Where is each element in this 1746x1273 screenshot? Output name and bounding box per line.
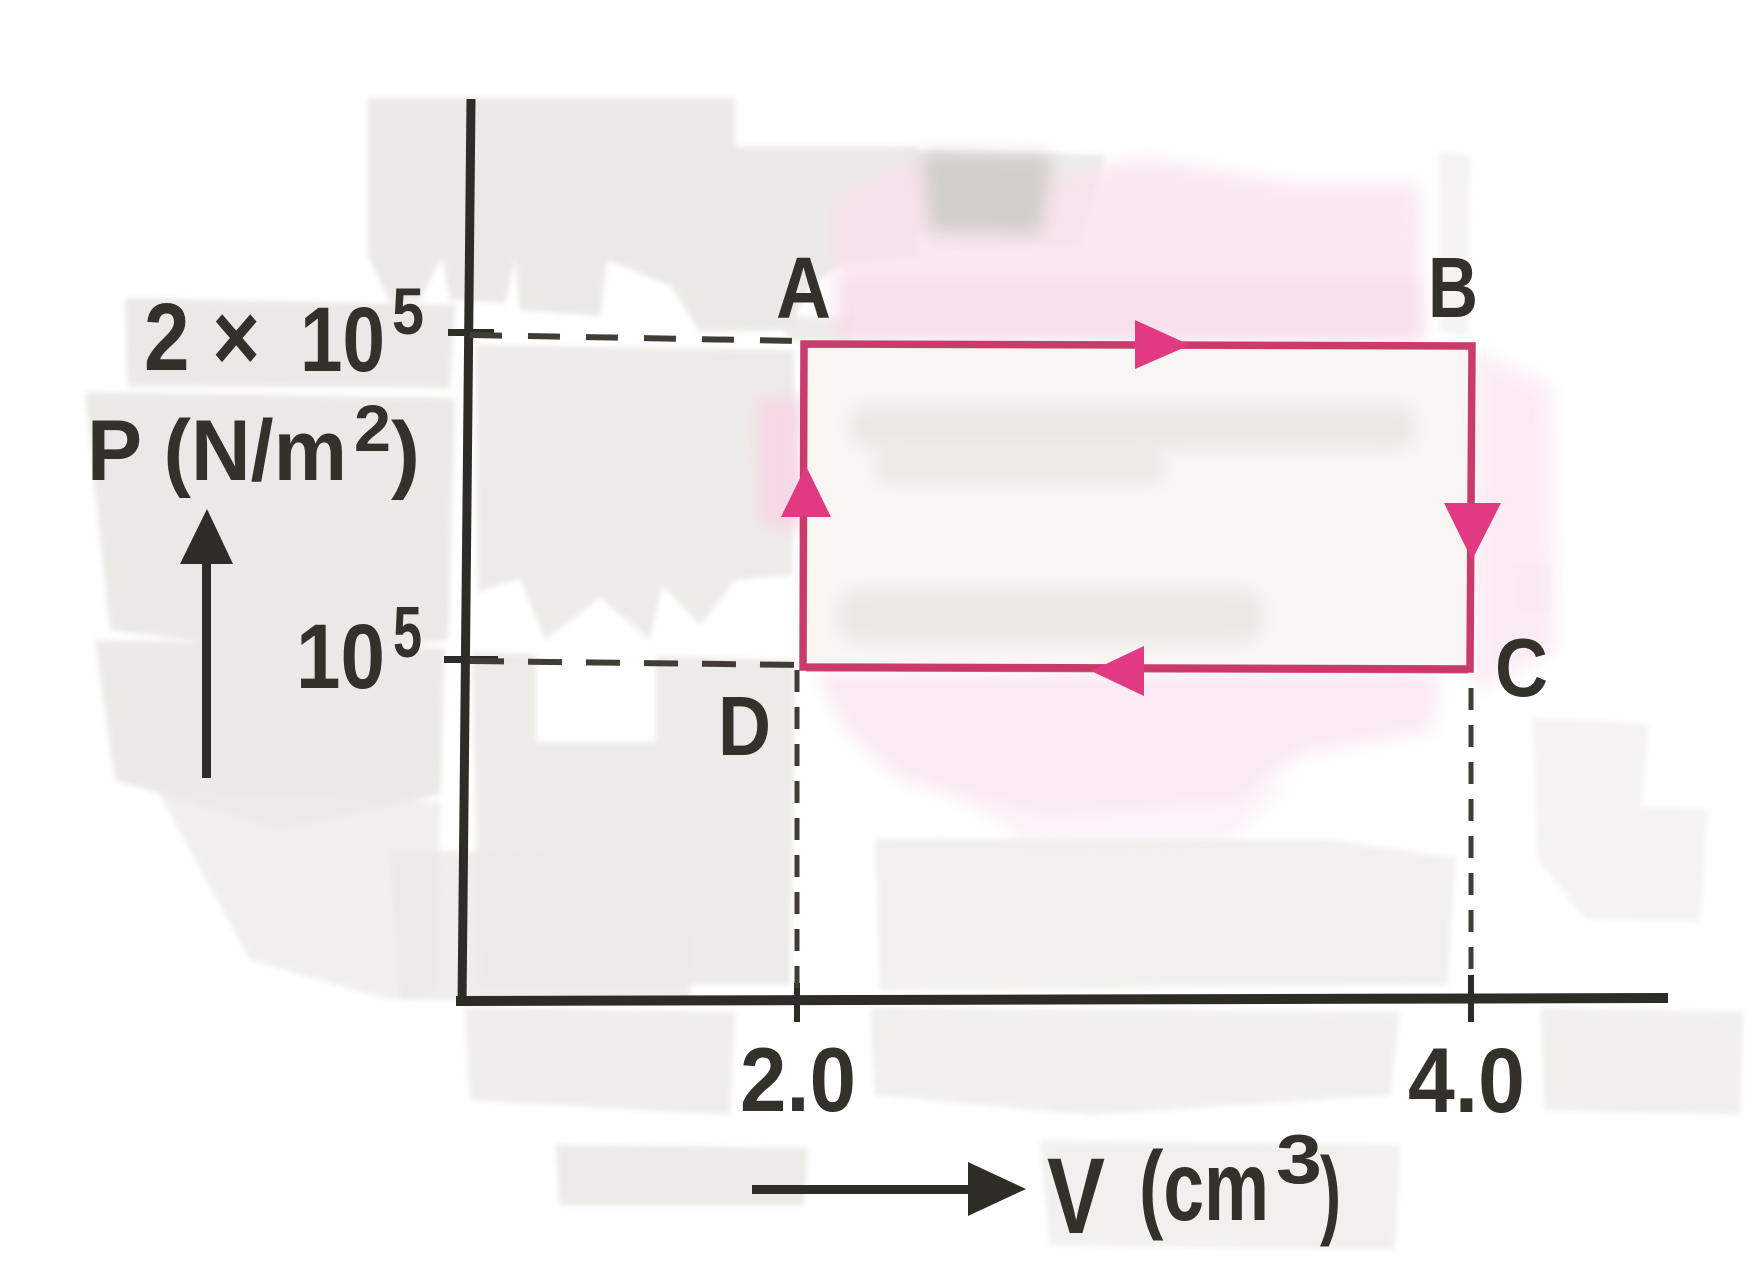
- svg-text:4.0: 4.0: [1408, 1030, 1525, 1132]
- svg-text:3: 3: [1276, 1120, 1322, 1198]
- svg-text:(cm: (cm: [1139, 1131, 1269, 1241]
- svg-text:10: 10: [296, 606, 385, 708]
- svg-text:): ): [1320, 1137, 1341, 1247]
- svg-text:2.0: 2.0: [740, 1030, 856, 1131]
- svg-text:P (N/m: P (N/m: [87, 403, 347, 499]
- svg-text:5: 5: [392, 274, 424, 348]
- svg-text:10: 10: [300, 289, 385, 391]
- svg-text:): ): [391, 405, 420, 501]
- svg-text:5: 5: [393, 593, 422, 673]
- svg-text:D: D: [718, 679, 771, 773]
- svg-text:V: V: [1047, 1135, 1105, 1256]
- svg-text:B: B: [1428, 241, 1478, 336]
- svg-text:2 ×: 2 ×: [144, 284, 260, 391]
- svg-text:C: C: [1495, 621, 1548, 714]
- svg-text:A: A: [776, 240, 831, 337]
- svg-text:2: 2: [354, 391, 391, 465]
